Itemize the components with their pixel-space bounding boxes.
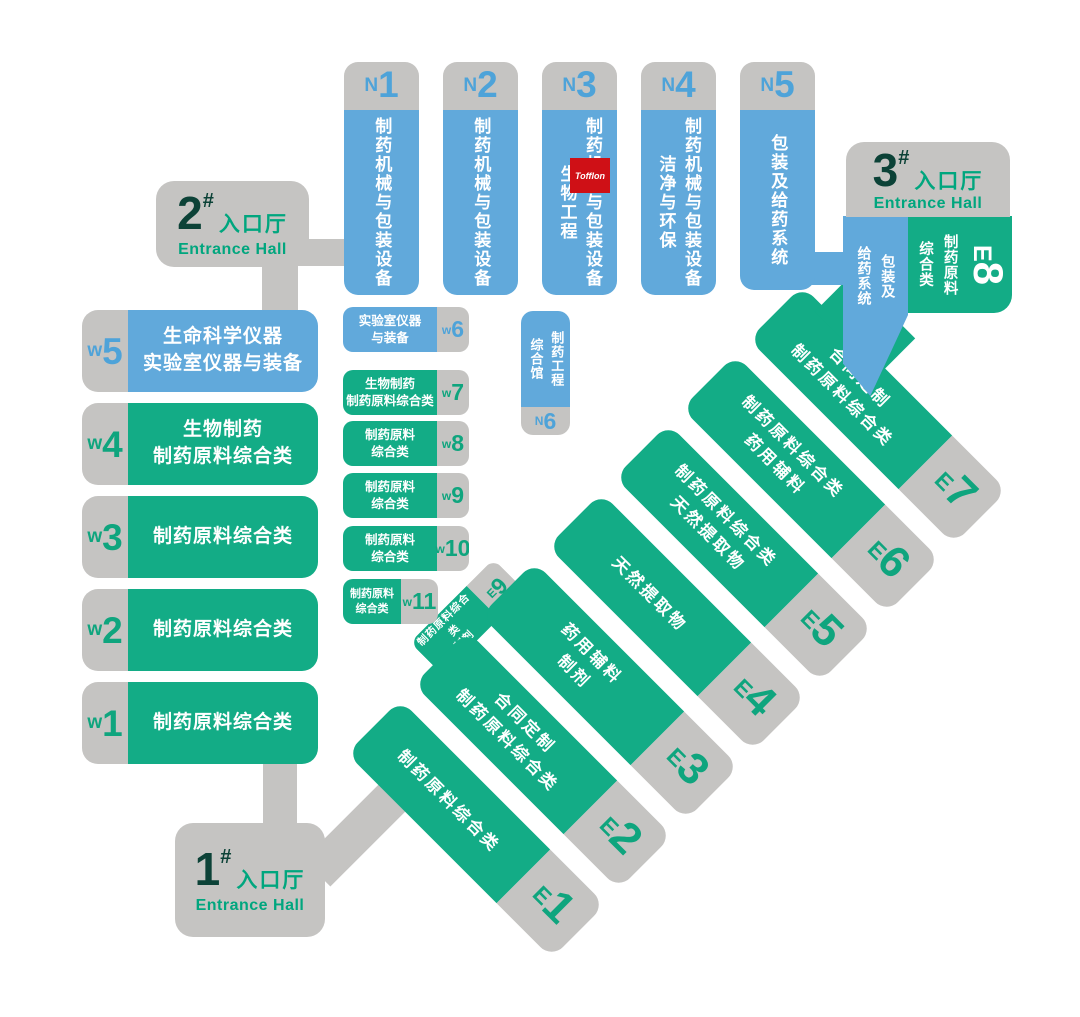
hall-w1-letter: w bbox=[87, 712, 102, 734]
hall-w6-tab: w6 bbox=[437, 307, 469, 352]
hall-w3-body: 制药原料综合类 bbox=[128, 496, 318, 578]
hall-n5-body: 包装及给药系统 bbox=[740, 110, 815, 290]
packaging-strip[interactable]: 包装及 给药系统 bbox=[843, 216, 908, 396]
hall-w5[interactable]: w5 生命科学仪器 实验室仪器与装备 bbox=[82, 310, 318, 392]
hall-w5-category: 生命科学仪器 bbox=[163, 324, 283, 351]
hall-n3-letter: N bbox=[562, 75, 576, 97]
hall-w5-letter: w bbox=[87, 340, 102, 362]
hall-w10-body: 制药原料 综合类 bbox=[343, 526, 437, 571]
entrance-3-label-en: Entrance Hall bbox=[874, 195, 983, 213]
hall-n2-tab: N2 bbox=[443, 62, 518, 110]
entrance-1-number: 1 bbox=[195, 846, 221, 892]
hall-w1-number: 1 bbox=[102, 705, 123, 742]
hall-w4-letter: w bbox=[87, 433, 102, 455]
entrance-hall-2-title: 2 # 入口厅 bbox=[177, 190, 288, 238]
hall-w1-category: 制药原料综合类 bbox=[153, 710, 293, 737]
hall-w10-tab: w10 bbox=[437, 526, 469, 571]
hall-n3-category2: 生物工程 bbox=[554, 117, 580, 288]
hall-n4-letter: N bbox=[661, 75, 675, 97]
tofflon-logo: Tofflon bbox=[570, 158, 610, 193]
hall-w9-category: 制药原料 bbox=[365, 479, 415, 496]
hall-n4-body: 制药机械与包装设备 洁净与环保 bbox=[641, 110, 716, 295]
hall-e1-category: 制药原料综合类 bbox=[391, 744, 505, 858]
hall-n5[interactable]: N5 包装及给药系统 bbox=[740, 62, 815, 290]
entrance-hall-3[interactable]: 3 # 入口厅 Entrance Hall bbox=[846, 142, 1010, 217]
connector-n5-strip bbox=[810, 252, 850, 285]
expo-floor-plan: 制药原料综合类 制剂 E9 制药原料综合类 E1 合同定制 制药原料综合类 E bbox=[0, 0, 1080, 1017]
hall-w11-category2: 综合类 bbox=[356, 602, 389, 617]
hall-n6-letter: N bbox=[535, 414, 544, 428]
hall-n5-number: 5 bbox=[774, 66, 795, 103]
hall-w2[interactable]: w2 制药原料综合类 bbox=[82, 589, 318, 671]
hall-w6-category: 实验室仪器 bbox=[359, 313, 422, 330]
hall-n1-tab: N1 bbox=[344, 62, 419, 110]
hall-n4-number: 4 bbox=[675, 66, 696, 103]
hall-w2-category: 制药原料综合类 bbox=[153, 617, 293, 644]
hall-w8-letter: w bbox=[442, 437, 451, 451]
packaging-strip-label-wrap: 包装及 给药系统 bbox=[843, 224, 908, 328]
hall-w10-number: 10 bbox=[445, 537, 469, 560]
hall-w7-body: 生物制药 制药原料综合类 bbox=[343, 370, 437, 415]
hall-w4-category: 生物制药 bbox=[183, 417, 263, 444]
hall-w3[interactable]: w3 制药原料综合类 bbox=[82, 496, 318, 578]
entrance-3-hash: # bbox=[898, 147, 909, 170]
hall-n4-category: 制药机械与包装设备 bbox=[679, 117, 705, 288]
hall-w5-number: 5 bbox=[102, 333, 123, 370]
hall-n2-letter: N bbox=[463, 75, 477, 97]
hall-w11-letter: w bbox=[403, 595, 412, 609]
hall-w7-category2: 制药原料综合类 bbox=[346, 393, 434, 410]
hall-w8[interactable]: 制药原料 综合类 w8 bbox=[343, 421, 469, 466]
hall-w4-tab: w4 bbox=[82, 403, 128, 485]
hall-w9-letter: w bbox=[442, 489, 451, 503]
entrance-2-label-en: Entrance Hall bbox=[178, 241, 287, 259]
hall-n6-tab: N6 bbox=[521, 407, 570, 435]
hall-w11-body: 制药原料 综合类 bbox=[343, 579, 401, 624]
hall-w3-tab: w3 bbox=[82, 496, 128, 578]
hall-w5-category2: 实验室仪器与装备 bbox=[143, 351, 303, 378]
hall-n3-tab: N3 bbox=[542, 62, 617, 110]
hall-e8[interactable]: 制药原料 综合类 E8 bbox=[908, 216, 1012, 313]
hall-w9-number: 9 bbox=[451, 484, 464, 507]
hall-w8-category2: 综合类 bbox=[371, 444, 409, 461]
hall-w3-category: 制药原料综合类 bbox=[153, 524, 293, 551]
hall-e8-category: 制药原料 bbox=[937, 234, 962, 296]
hall-n3-body: 制药机械与包装设备 生物工程 bbox=[542, 110, 617, 295]
hall-n5-category: 包装及给药系统 bbox=[765, 134, 791, 267]
hall-n6-category: 制药工程 bbox=[546, 331, 567, 387]
entrance-1-label-en: Entrance Hall bbox=[196, 897, 305, 915]
entrance-3-label-cn: 入口厅 bbox=[914, 165, 983, 195]
hall-n2-category: 制药机械与包装设备 bbox=[468, 117, 494, 288]
hall-n1[interactable]: N1 制药机械与包装设备 bbox=[344, 62, 419, 295]
hall-w9-tab: w9 bbox=[437, 473, 469, 518]
hall-n6-number: 6 bbox=[543, 410, 556, 433]
hall-w9[interactable]: 制药原料 综合类 w9 bbox=[343, 473, 469, 518]
entrance-hall-1[interactable]: 1 # 入口厅 Entrance Hall bbox=[175, 823, 325, 937]
hall-w1[interactable]: w1 制药原料综合类 bbox=[82, 682, 318, 764]
hall-w10[interactable]: 制药原料 综合类 w10 bbox=[343, 526, 469, 571]
hall-w2-tab: w2 bbox=[82, 589, 128, 671]
hall-n2[interactable]: N2 制药机械与包装设备 bbox=[443, 62, 518, 295]
hall-w10-letter: w bbox=[436, 542, 445, 556]
hall-n5-letter: N bbox=[760, 75, 774, 97]
hall-w1-body: 制药原料综合类 bbox=[128, 682, 318, 764]
entrance-1-label-cn: 入口厅 bbox=[236, 864, 305, 894]
hall-e8-category2: 综合类 bbox=[912, 234, 937, 296]
connector-w1-entrance1 bbox=[263, 762, 297, 828]
hall-n2-body: 制药机械与包装设备 bbox=[443, 110, 518, 295]
hall-n1-body: 制药机械与包装设备 bbox=[344, 110, 419, 295]
hall-w1-tab: w1 bbox=[82, 682, 128, 764]
hall-w6-number: 6 bbox=[451, 318, 464, 341]
hall-w7-category: 生物制药 bbox=[365, 376, 415, 393]
hall-w6-letter: w bbox=[442, 323, 451, 337]
hall-w9-body: 制药原料 综合类 bbox=[343, 473, 437, 518]
hall-e8-number: 8 bbox=[967, 261, 1009, 284]
hall-n6-body: 制药工程 综合馆 bbox=[521, 311, 570, 407]
hall-w6-category2: 与装备 bbox=[371, 330, 409, 347]
hall-n6-category2: 综合馆 bbox=[525, 331, 546, 387]
hall-n6[interactable]: 制药工程 综合馆 N6 bbox=[521, 311, 570, 435]
hall-n3-number: 3 bbox=[576, 66, 597, 103]
hall-w5-tab: w5 bbox=[82, 310, 128, 392]
hall-w9-category2: 综合类 bbox=[371, 496, 409, 513]
entrance-1-hash: # bbox=[220, 846, 231, 869]
entrance-2-hash: # bbox=[203, 190, 214, 213]
hall-w11-number: 11 bbox=[412, 590, 436, 613]
hall-w5-body: 生命科学仪器 实验室仪器与装备 bbox=[128, 310, 318, 392]
hall-w6[interactable]: 实验室仪器 与装备 w6 bbox=[343, 307, 469, 352]
hall-w4-body: 生物制药 制药原料综合类 bbox=[128, 403, 318, 485]
hall-w3-number: 3 bbox=[102, 519, 123, 556]
entrance-2-number: 2 bbox=[177, 190, 203, 236]
hall-w7[interactable]: 生物制药 制药原料综合类 w7 bbox=[343, 370, 469, 415]
packaging-strip-label2: 给药系统 bbox=[852, 246, 876, 306]
entrance-hall-2[interactable]: 2 # 入口厅 Entrance Hall bbox=[156, 181, 309, 267]
hall-w11-tab: w11 bbox=[401, 579, 438, 624]
hall-w4-number: 4 bbox=[102, 426, 123, 463]
hall-w8-tab: w8 bbox=[437, 421, 469, 466]
hall-w4-category2: 制药原料综合类 bbox=[153, 444, 293, 471]
hall-w11[interactable]: 制药原料 综合类 w11 bbox=[343, 579, 438, 624]
hall-n1-category: 制药机械与包装设备 bbox=[369, 117, 395, 288]
hall-w8-category: 制药原料 bbox=[365, 427, 415, 444]
hall-w7-tab: w7 bbox=[437, 370, 469, 415]
hall-n2-number: 2 bbox=[477, 66, 498, 103]
hall-n4[interactable]: N4 制药机械与包装设备 洁净与环保 bbox=[641, 62, 716, 295]
hall-w2-number: 2 bbox=[102, 612, 123, 649]
hall-e4-category: 天然提取物 bbox=[606, 551, 692, 637]
entrance-3-number: 3 bbox=[873, 147, 899, 193]
hall-w7-number: 7 bbox=[451, 381, 464, 404]
hall-w7-letter: w bbox=[442, 386, 451, 400]
hall-w2-body: 制药原料综合类 bbox=[128, 589, 318, 671]
hall-w4[interactable]: w4 生物制药 制药原料综合类 bbox=[82, 403, 318, 485]
hall-n5-tab: N5 bbox=[740, 62, 815, 110]
hall-w2-letter: w bbox=[87, 619, 102, 641]
hall-w11-category: 制药原料 bbox=[350, 587, 394, 602]
hall-w8-body: 制药原料 综合类 bbox=[343, 421, 437, 466]
hall-e8-letter: E bbox=[967, 244, 996, 261]
hall-w10-category2: 综合类 bbox=[371, 549, 409, 566]
entrance-hall-3-title: 3 # 入口厅 bbox=[873, 147, 984, 195]
hall-n4-tab: N4 bbox=[641, 62, 716, 110]
hall-n4-category2: 洁净与环保 bbox=[653, 117, 679, 288]
hall-e8-label: E8 bbox=[967, 244, 1009, 284]
hall-w8-number: 8 bbox=[451, 432, 464, 455]
tofflon-logo-text: Tofflon bbox=[575, 171, 605, 181]
hall-w3-letter: w bbox=[87, 526, 102, 548]
entrance-2-label-cn: 入口厅 bbox=[219, 208, 288, 238]
hall-n3-category: 制药机械与包装设备 bbox=[580, 117, 606, 288]
hall-e8-category-wrap: 制药原料 综合类 bbox=[912, 234, 961, 296]
hall-n1-letter: N bbox=[364, 75, 378, 97]
hall-n1-number: 1 bbox=[378, 66, 399, 103]
hall-w6-body: 实验室仪器 与装备 bbox=[343, 307, 437, 352]
entrance-hall-1-title: 1 # 入口厅 bbox=[195, 846, 306, 894]
packaging-strip-label: 包装及 bbox=[876, 246, 900, 306]
hall-w10-category: 制药原料 bbox=[365, 532, 415, 549]
